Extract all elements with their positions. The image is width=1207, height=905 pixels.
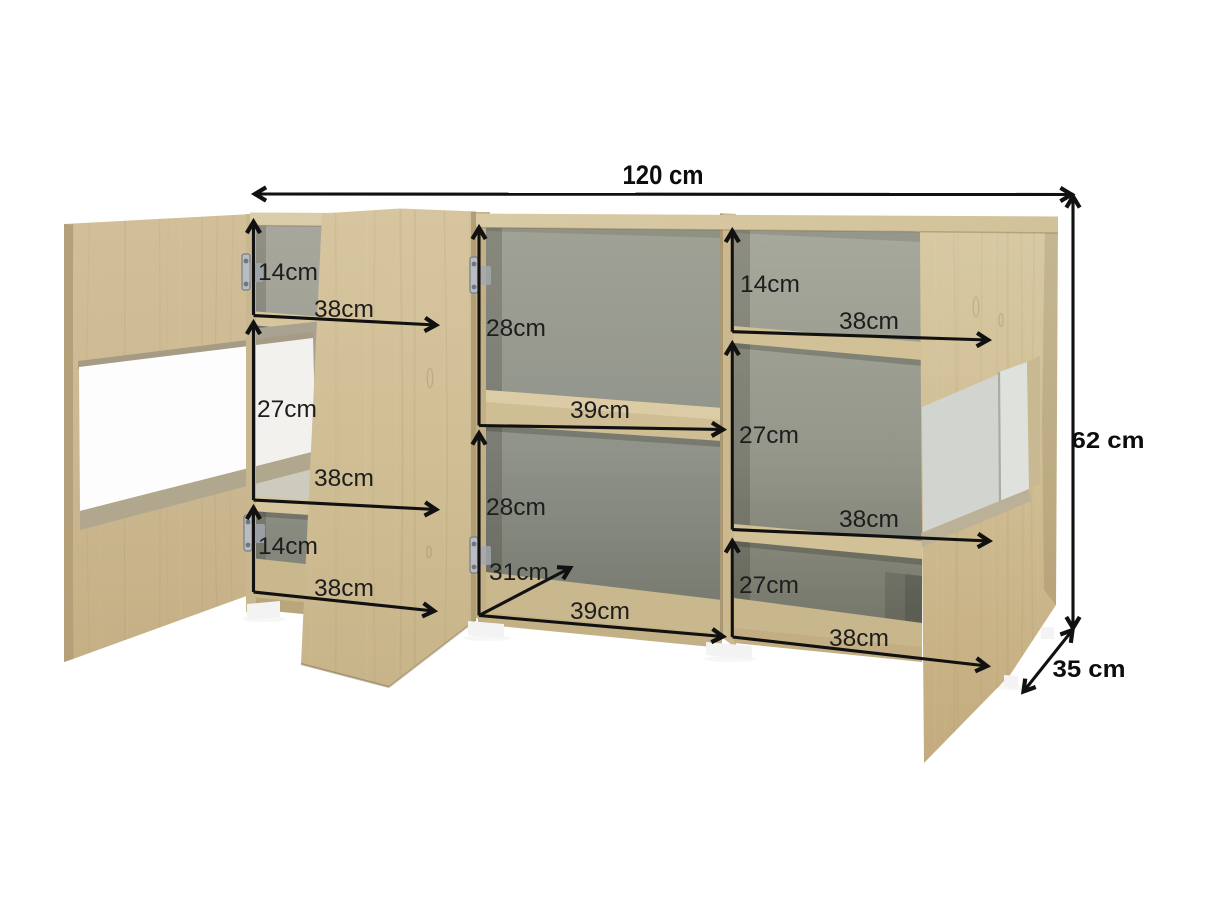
svg-text:38cm: 38cm <box>839 506 899 533</box>
svg-text:38cm: 38cm <box>314 575 374 602</box>
svg-text:14cm: 14cm <box>258 259 318 286</box>
svg-text:120 cm: 120 cm <box>623 160 704 190</box>
svg-text:38cm: 38cm <box>839 308 899 335</box>
svg-text:28cm: 28cm <box>486 315 546 342</box>
svg-text:38cm: 38cm <box>829 625 889 652</box>
svg-text:14cm: 14cm <box>258 533 318 560</box>
svg-text:35 cm: 35 cm <box>1053 656 1126 683</box>
svg-text:38cm: 38cm <box>314 465 374 492</box>
svg-text:28cm: 28cm <box>486 494 546 521</box>
svg-text:27cm: 27cm <box>257 396 317 423</box>
svg-text:31cm: 31cm <box>489 559 549 586</box>
svg-text:14cm: 14cm <box>740 271 800 298</box>
svg-text:62 cm: 62 cm <box>1072 427 1145 453</box>
svg-text:27cm: 27cm <box>739 422 799 449</box>
svg-text:39cm: 39cm <box>570 598 630 625</box>
svg-text:38cm: 38cm <box>314 296 374 323</box>
svg-text:27cm: 27cm <box>739 572 799 599</box>
svg-text:39cm: 39cm <box>570 397 630 424</box>
